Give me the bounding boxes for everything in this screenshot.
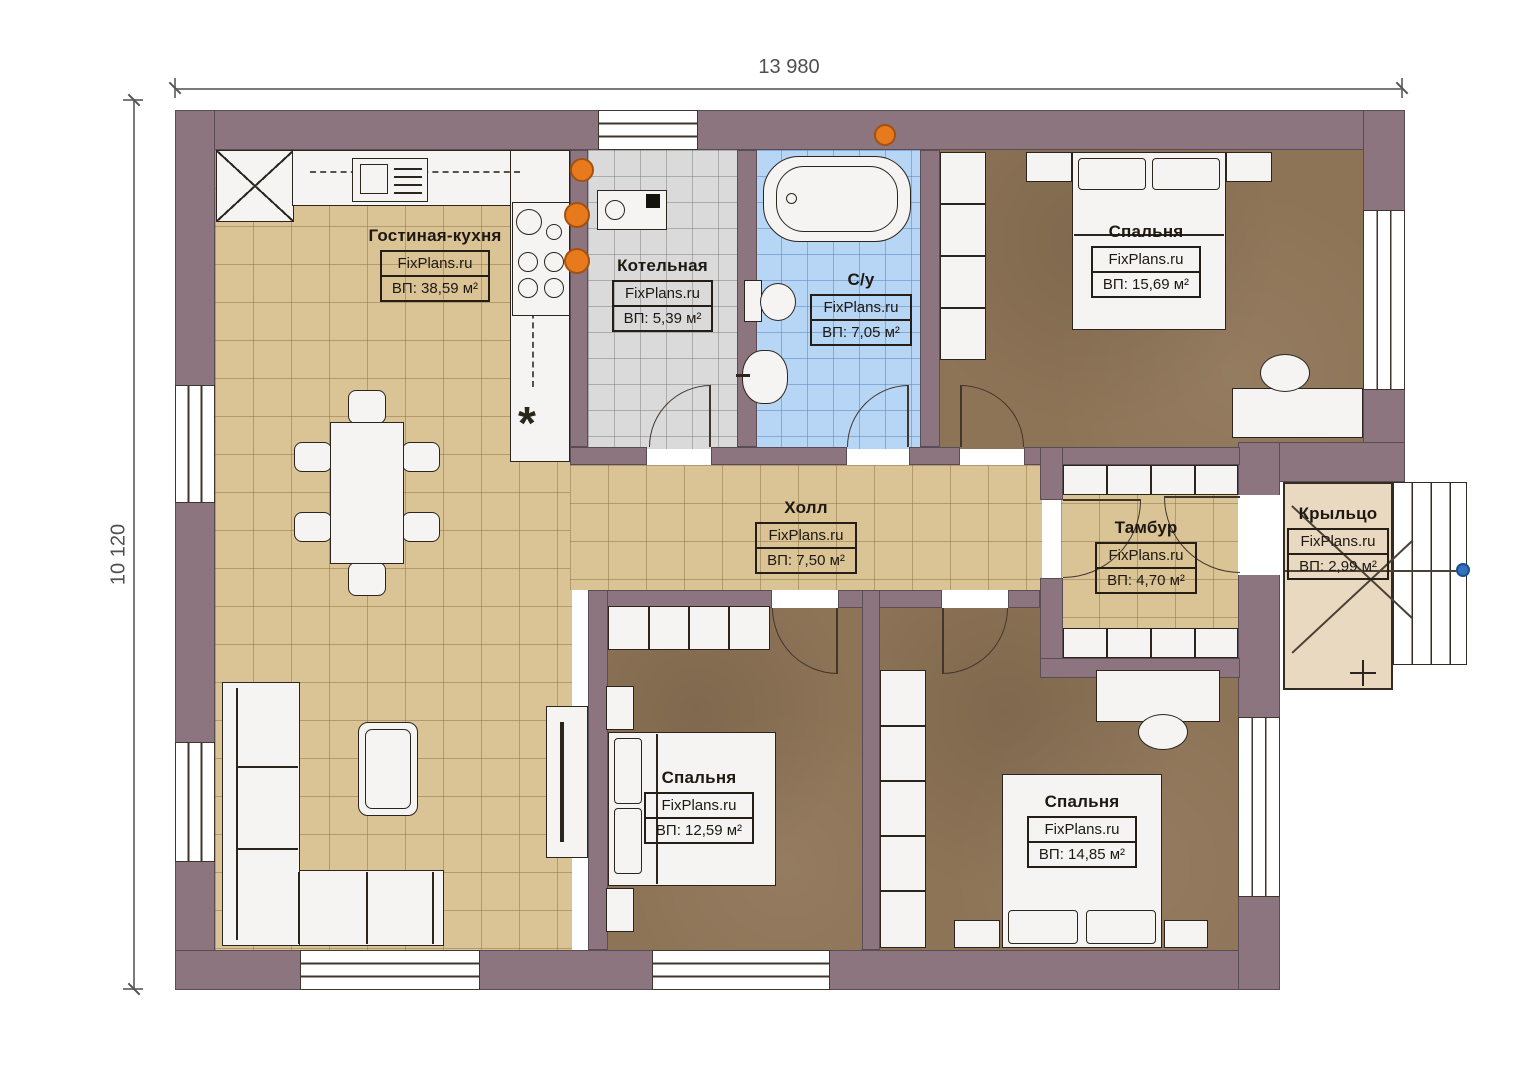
room-label-tambour: Тамбур FixPlans.ru ВП: 4,70 м² (1076, 518, 1216, 594)
wardrobe-divider (881, 835, 925, 837)
wardrobe-divider (688, 607, 690, 649)
room-brand: FixPlans.ru (757, 524, 855, 549)
dining-chair (294, 442, 332, 472)
cabinet-divider (1150, 629, 1152, 657)
toilet-bowl (760, 283, 796, 321)
door-leaf (709, 385, 711, 447)
room-area: ВП: 38,59 м² (382, 277, 488, 300)
wardrobe-divider (941, 203, 985, 205)
drag-handle[interactable] (1456, 563, 1470, 577)
room-name: Гостиная-кухня (355, 226, 515, 246)
wardrobe-divider (941, 255, 985, 257)
drainer-line (394, 184, 422, 186)
radiator-dot (564, 248, 590, 274)
tv-stand (546, 706, 588, 858)
cabinet-divider (1194, 629, 1196, 657)
door-leaf (942, 608, 944, 674)
kitchen-sink-basin (360, 164, 388, 194)
dining-chair (402, 512, 440, 542)
window-left-upper (175, 385, 215, 503)
window-left-lower (175, 742, 215, 862)
desk-chair (1260, 354, 1310, 392)
sofa-seat-line (298, 872, 300, 944)
door-leaf (1164, 496, 1240, 498)
room-label-bathroom: С/у FixPlans.ru ВП: 7,05 м² (796, 270, 926, 346)
sofa-seat-line (366, 872, 368, 944)
room-area: ВП: 5,39 м² (614, 307, 712, 330)
porch-cross-marker (1362, 660, 1364, 686)
cabinet-divider (1194, 466, 1196, 494)
room-label-hall: Холл FixPlans.ru ВП: 7,50 м² (736, 498, 876, 574)
room-label-porch: Крыльцо FixPlans.ru ВП: 2,99 м² (1272, 504, 1404, 580)
room-area: ВП: 2,99 м² (1289, 555, 1387, 578)
sofa-seat-line (236, 848, 298, 850)
bathtub-drain (786, 193, 797, 204)
stove-burner (544, 252, 564, 272)
room-brand: FixPlans.ru (1097, 544, 1195, 569)
dining-chair (348, 390, 386, 424)
dining-chair (348, 562, 386, 596)
room-name: Тамбур (1076, 518, 1216, 538)
room-label-bedroom-top: Спальня FixPlans.ru ВП: 15,69 м² (1076, 222, 1216, 298)
wall-hall-top-segment (909, 447, 960, 465)
window-bottom-bedroom-mid (652, 950, 830, 990)
room-area: ВП: 15,69 м² (1093, 273, 1199, 296)
room-name: Спальня (628, 768, 770, 788)
room-name: Холл (736, 498, 876, 518)
stove-burner (518, 252, 538, 272)
nightstand (1164, 920, 1208, 948)
tv-screen (560, 722, 564, 842)
wardrobe-divider (941, 307, 985, 309)
drainer-line (394, 176, 422, 178)
room-brand: FixPlans.ru (812, 296, 910, 321)
desk-bedroom-top (1232, 388, 1363, 438)
room-label-bedroom-right: Спальня FixPlans.ru ВП: 14,85 м² (1010, 792, 1154, 868)
wall-living-bedroom-mid (588, 590, 608, 950)
wall-exterior-top (175, 110, 1405, 150)
nightstand (606, 888, 634, 932)
kitchen-fridge (216, 150, 294, 222)
wall-living-boiler (570, 150, 588, 447)
dining-table (330, 422, 404, 564)
room-area: ВП: 4,70 м² (1097, 569, 1195, 592)
room-name: Котельная (590, 256, 735, 276)
pillow (1078, 158, 1146, 190)
coffee-table-inner (365, 729, 411, 809)
dimension-height-label: 10 120 (108, 512, 131, 598)
nightstand (954, 920, 1000, 948)
window-top-boiler (598, 110, 698, 150)
door-leaf (1063, 499, 1141, 501)
bathroom-sink (742, 350, 788, 404)
wall-bedrooms-divider (862, 590, 880, 950)
wall-tambour-left-segment (1040, 447, 1063, 500)
window-right-bedroom-top (1363, 210, 1405, 390)
cabinet-divider (1106, 629, 1108, 657)
sink-bowl-small (546, 224, 562, 240)
room-brand: FixPlans.ru (646, 794, 752, 819)
pillow (1086, 910, 1156, 944)
room-brand: FixPlans.ru (1289, 530, 1387, 555)
room-area: ВП: 14,85 м² (1029, 843, 1135, 866)
wardrobe-divider (881, 890, 925, 892)
nightstand (1026, 152, 1072, 182)
boiler-gauge (605, 200, 625, 220)
wall-hall-top-segment (711, 447, 847, 465)
wall-hall-bottom-segment (1008, 590, 1040, 608)
room-label-bedroom-mid: Спальня FixPlans.ru ВП: 12,59 м² (628, 768, 770, 844)
pillow (1152, 158, 1220, 190)
sofa-back-line (236, 688, 238, 940)
door-leaf (836, 608, 838, 674)
wardrobe-divider (881, 780, 925, 782)
dining-chair (402, 442, 440, 472)
sink-bowl-large (516, 209, 542, 235)
stove-burner (544, 278, 564, 298)
sofa-armrest-line (432, 872, 434, 944)
room-area: ВП: 7,50 м² (757, 549, 855, 572)
room-area: ВП: 7,05 м² (812, 321, 910, 344)
dimension-line-top (175, 88, 1403, 90)
boiler-panel (646, 194, 660, 208)
room-brand: FixPlans.ru (614, 282, 712, 307)
dimension-line-left (133, 100, 135, 990)
room-name: С/у (796, 270, 926, 290)
room-label-living: Гостиная-кухня FixPlans.ru ВП: 38,59 м² (355, 226, 515, 302)
drainer-line (394, 168, 422, 170)
wall-hall-top-segment (570, 447, 647, 465)
window-right-bedroom-right (1238, 717, 1280, 897)
wardrobe-divider (881, 725, 925, 727)
sink-tap (736, 374, 750, 377)
wardrobe-divider (648, 607, 650, 649)
vent-symbol: * (518, 400, 536, 446)
room-name: Спальня (1076, 222, 1216, 242)
cabinet-divider (1106, 466, 1108, 494)
room-brand: FixPlans.ru (1093, 248, 1199, 273)
stove-burner (518, 278, 538, 298)
floor-plan-canvas: 13 980 10 120 (0, 0, 1528, 1080)
room-name: Спальня (1010, 792, 1154, 812)
door-leaf (960, 385, 962, 447)
desk-chair (1138, 714, 1188, 750)
room-name: Крыльцо (1272, 504, 1404, 524)
radiator-dot (564, 202, 590, 228)
dining-chair (294, 512, 332, 542)
nightstand (1226, 152, 1272, 182)
room-area: ВП: 12,59 м² (646, 819, 752, 842)
room-brand: FixPlans.ru (382, 252, 488, 277)
sofa-seat-line (236, 766, 298, 768)
pillow (1008, 910, 1078, 944)
wardrobe-bedroom-right (880, 670, 926, 948)
wall-hall-bottom-segment (838, 590, 942, 608)
room-brand: FixPlans.ru (1029, 818, 1135, 843)
cabinet-divider (1150, 466, 1152, 494)
window-bottom-living (300, 950, 480, 990)
radiator-dot (570, 158, 594, 182)
sofa-vertical-arm (222, 682, 300, 946)
room-label-boiler: Котельная FixPlans.ru ВП: 5,39 м² (590, 256, 735, 332)
drainer-line (394, 192, 422, 194)
porch-stairs (1393, 482, 1467, 665)
radiator-dot (874, 124, 896, 146)
nightstand (606, 686, 634, 730)
dimension-width-label: 13 980 (696, 56, 882, 79)
door-leaf (907, 385, 909, 447)
wardrobe-divider (728, 607, 730, 649)
